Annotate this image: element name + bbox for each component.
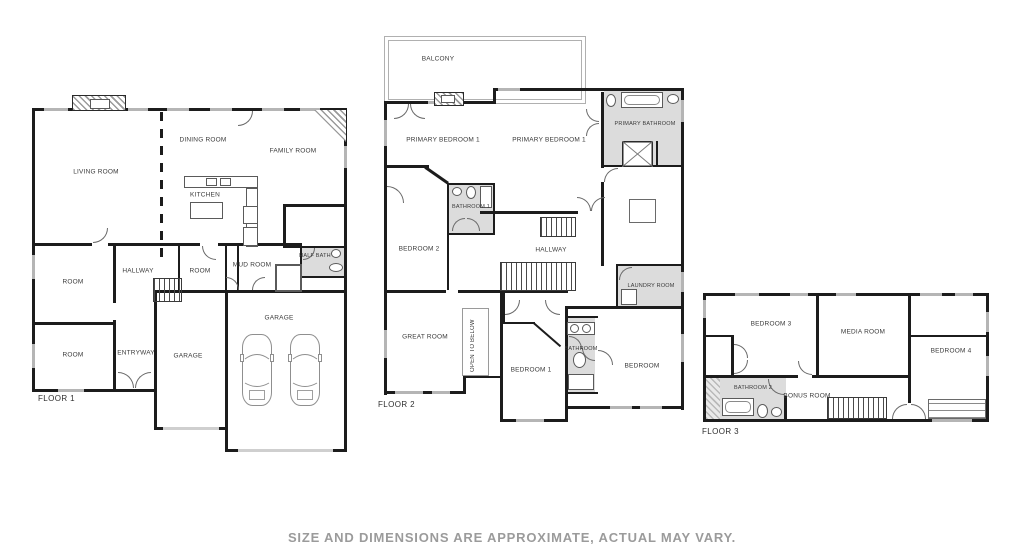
door-arc <box>911 404 926 419</box>
window-segment <box>955 293 973 296</box>
wall <box>703 375 798 378</box>
room-label: BEDROOM 4 <box>931 348 972 355</box>
room-label: BONUS ROOM <box>783 393 830 400</box>
door-arc <box>734 360 748 374</box>
wall <box>784 396 787 422</box>
window-segment <box>932 419 972 422</box>
bathtub-inner <box>725 401 751 413</box>
door-arc <box>734 344 748 358</box>
window-segment <box>790 293 808 296</box>
closet-shelving <box>928 399 986 419</box>
disclaimer-text: SIZE AND DIMENSIONS ARE APPROXIMATE, ACT… <box>0 530 1024 545</box>
wall <box>703 335 734 337</box>
door-arc <box>892 404 907 419</box>
window-segment <box>703 300 706 318</box>
stairs <box>827 397 887 419</box>
toilet-icon <box>757 404 768 418</box>
linen-shelves <box>706 378 720 419</box>
sink-icon <box>771 407 782 417</box>
room-label: BATHROOM 2 <box>734 385 772 391</box>
floor-plan-canvas: LIVING ROOM DINING ROOM FAMILY ROOM KITC… <box>0 0 1024 559</box>
wall <box>908 293 911 403</box>
wall <box>812 375 910 378</box>
wall <box>816 293 819 378</box>
room-label: BEDROOM 3 <box>751 321 792 328</box>
window-segment <box>920 293 942 296</box>
room-label: MEDIA ROOM <box>841 329 885 336</box>
window-segment <box>986 312 989 332</box>
floor3-plan: BEDROOM 3 MEDIA ROOM BEDROOM 4 BATHROOM … <box>0 0 1024 559</box>
wall <box>910 335 988 337</box>
door-arc <box>798 361 812 375</box>
window-segment <box>836 293 856 296</box>
window-segment <box>735 293 759 296</box>
window-segment <box>986 356 989 376</box>
floor-label: FLOOR 3 <box>702 427 739 436</box>
